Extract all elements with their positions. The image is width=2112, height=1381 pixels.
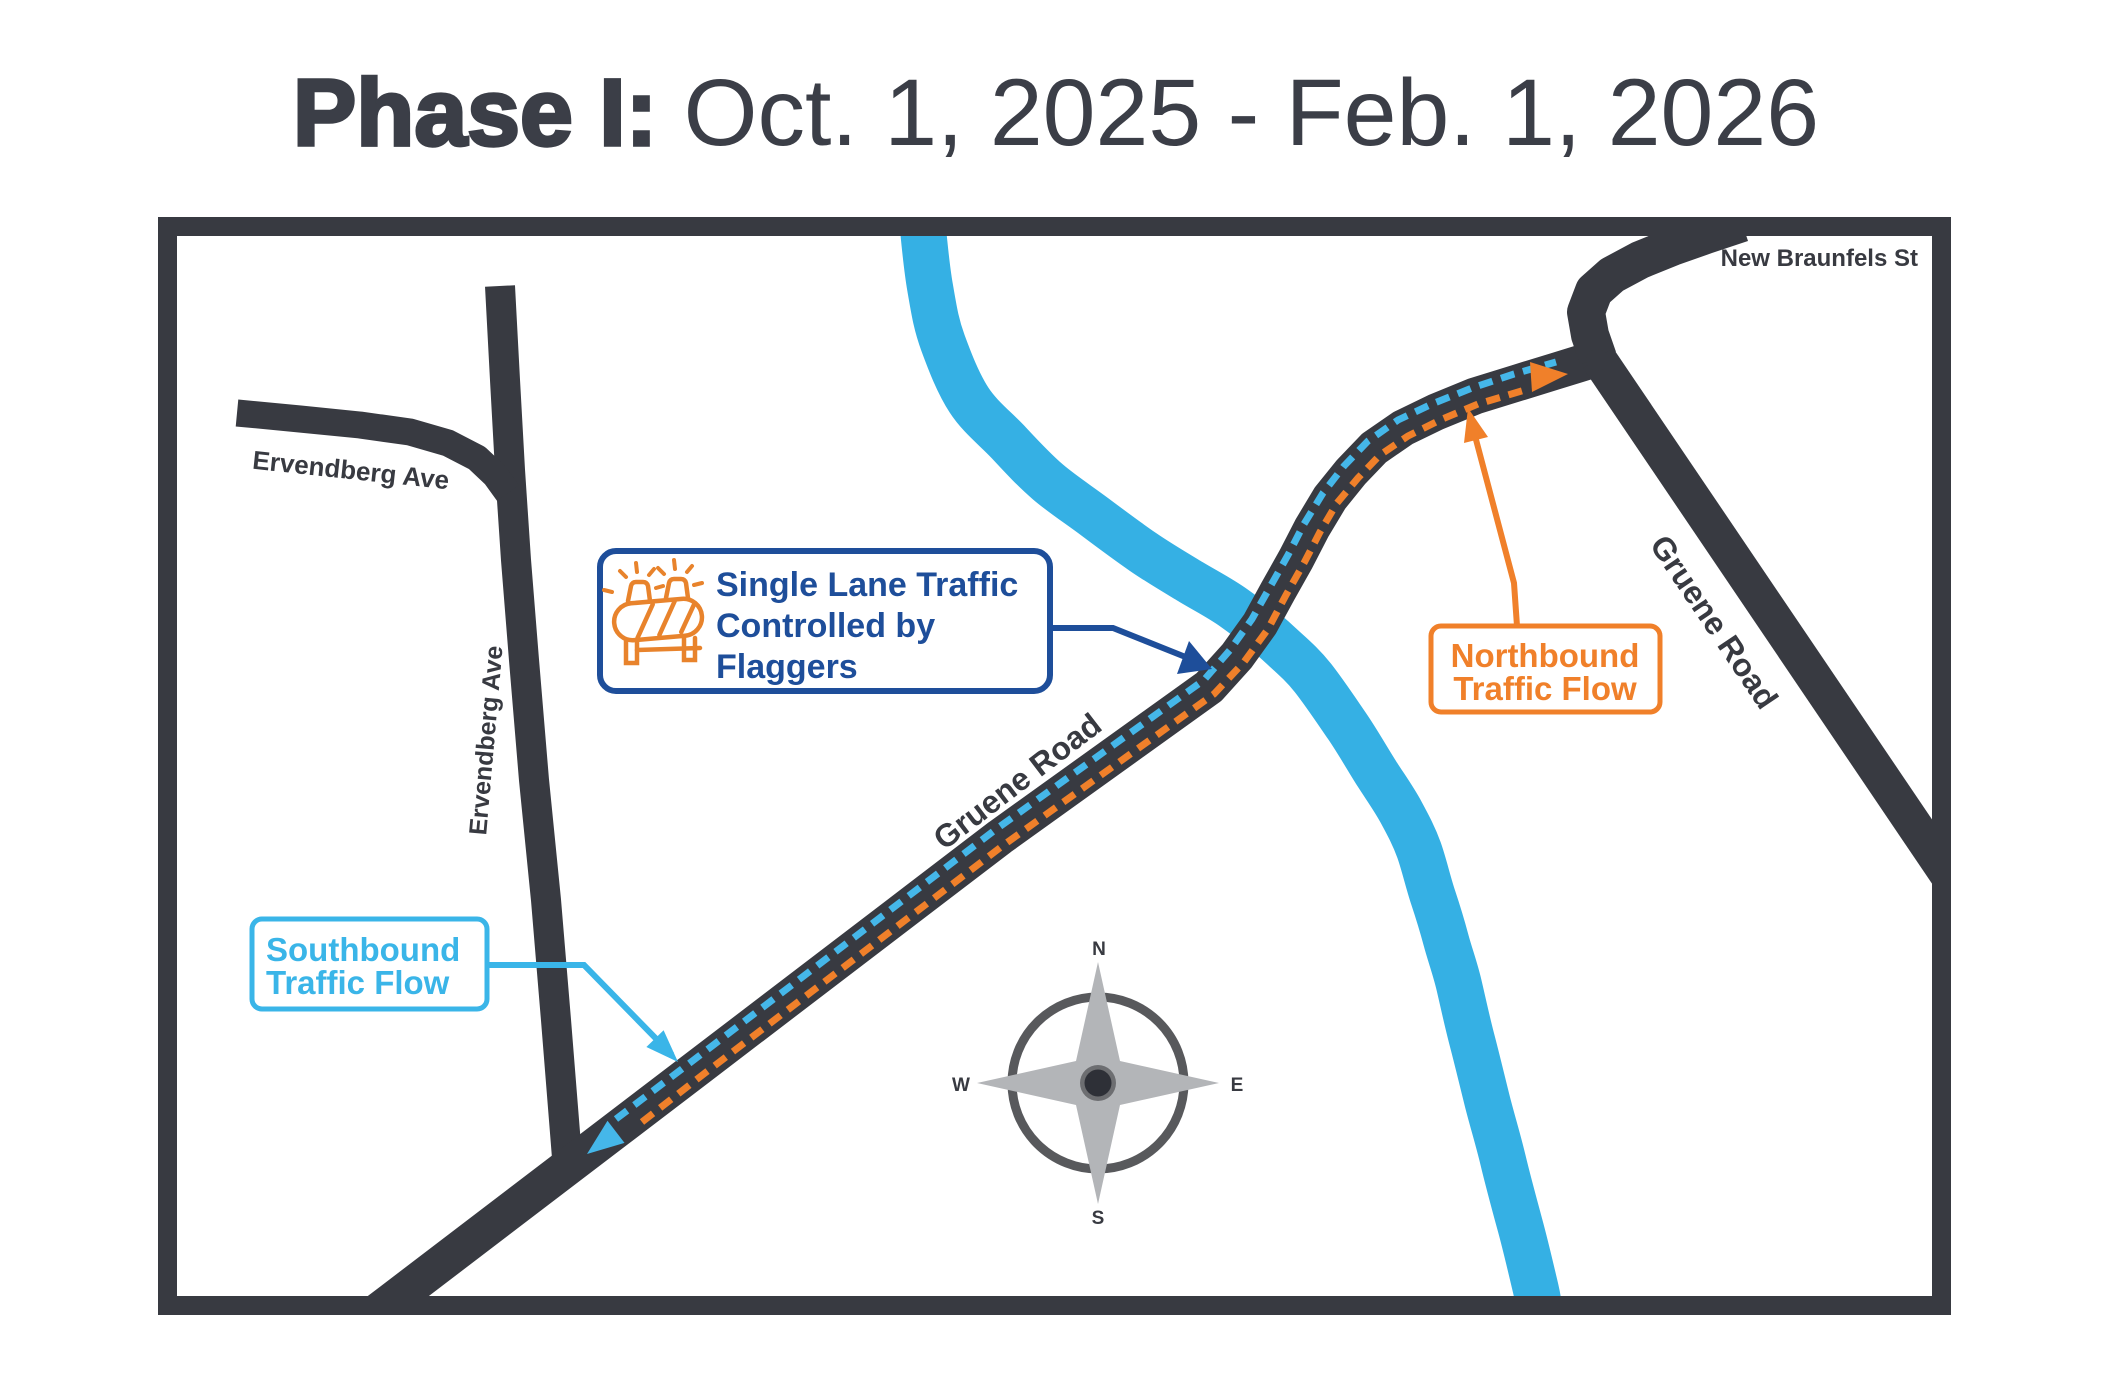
svg-text:E: E: [1231, 1075, 1244, 1096]
svg-text:Flaggers: Flaggers: [716, 648, 858, 686]
svg-text:Controlled by: Controlled by: [716, 607, 935, 645]
svg-text:W: W: [952, 1075, 970, 1096]
svg-text:New Braunfels St: New Braunfels St: [1721, 245, 1918, 272]
svg-text:S: S: [1092, 1208, 1105, 1229]
svg-text:Phase I: Oct. 1, 2025 - Feb. 1: Phase I: Oct. 1, 2025 - Feb. 1, 2026: [293, 60, 1819, 166]
svg-text:Southbound: Southbound: [266, 931, 460, 968]
svg-text:N: N: [1092, 939, 1106, 960]
svg-text:Northbound: Northbound: [1451, 637, 1640, 674]
svg-text:Traffic Flow: Traffic Flow: [266, 964, 450, 1001]
svg-text:Single Lane Traffic: Single Lane Traffic: [716, 566, 1018, 604]
svg-text:Traffic Flow: Traffic Flow: [1453, 670, 1637, 707]
